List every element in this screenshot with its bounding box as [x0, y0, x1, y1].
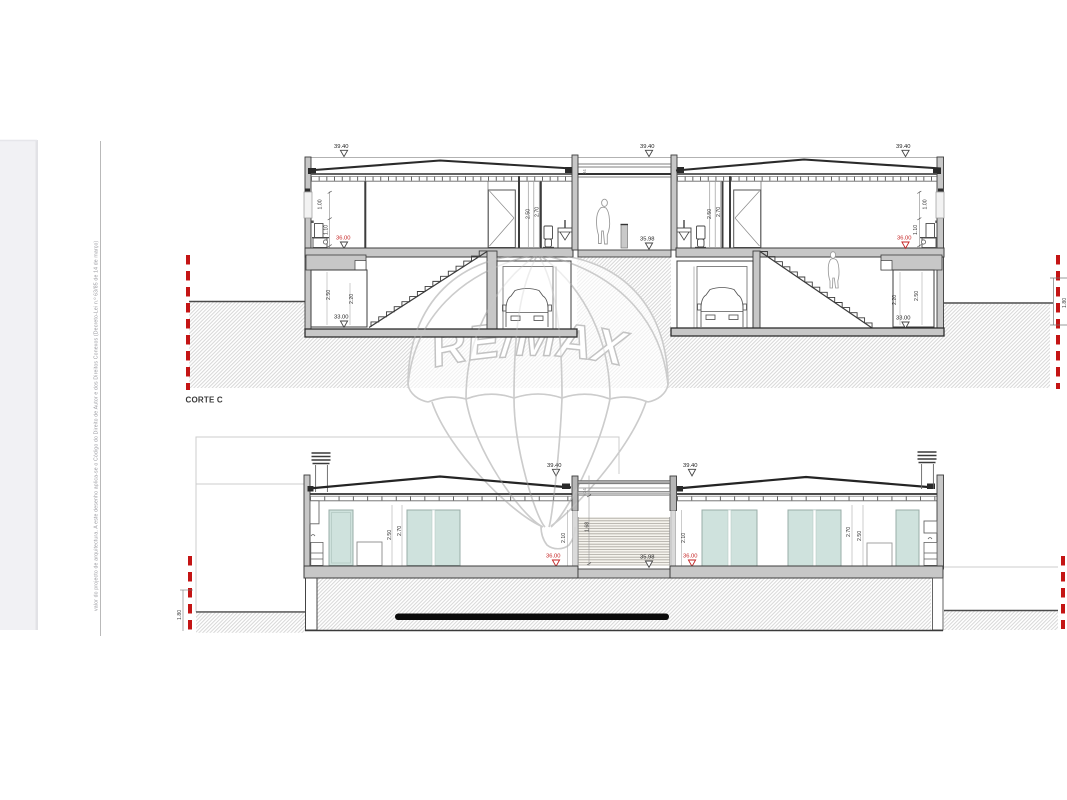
- svg-text:39.40: 39.40: [896, 144, 911, 150]
- svg-text:39.40: 39.40: [334, 144, 349, 150]
- svg-text:36.00: 36.00: [546, 554, 561, 560]
- svg-text:35.98: 35.98: [640, 237, 655, 243]
- svg-text:39.40: 39.40: [640, 144, 655, 150]
- svg-text:36.00: 36.00: [683, 554, 698, 560]
- svg-text:2.20: 2.20: [349, 294, 355, 304]
- svg-text:1.00: 1.00: [923, 199, 929, 209]
- svg-text:1.10: 1.10: [913, 225, 919, 235]
- svg-text:2.50: 2.50: [914, 291, 920, 301]
- svg-text:39.40: 39.40: [547, 463, 562, 469]
- svg-text:35.98: 35.98: [640, 555, 655, 561]
- svg-text:2.10: 2.10: [681, 533, 687, 543]
- svg-text:2.70: 2.70: [535, 207, 541, 217]
- svg-text:34: 34: [582, 169, 587, 174]
- svg-text:1.80: 1.80: [177, 610, 183, 620]
- svg-text:39.40: 39.40: [683, 463, 698, 469]
- svg-text:2.50: 2.50: [526, 209, 532, 219]
- svg-text:2.50: 2.50: [707, 209, 713, 219]
- svg-text:1.00: 1.00: [318, 199, 324, 209]
- svg-text:2.70: 2.70: [846, 527, 852, 537]
- svg-text:2.50: 2.50: [326, 290, 332, 300]
- svg-text:valor do projecto de arquitect: valor do projecto de arquitectura. A est…: [94, 240, 100, 611]
- svg-text:1.10: 1.10: [323, 225, 329, 235]
- svg-text:33.00: 33.00: [334, 315, 349, 321]
- svg-text:36.00: 36.00: [897, 236, 912, 242]
- svg-text:2.50: 2.50: [387, 530, 393, 540]
- svg-text:2.10: 2.10: [561, 533, 567, 543]
- svg-text:34: 34: [582, 488, 587, 493]
- svg-text:1.80: 1.80: [1062, 298, 1067, 308]
- svg-text:33.00: 33.00: [896, 316, 911, 322]
- svg-text:1.68: 1.68: [584, 522, 590, 532]
- svg-text:2.20: 2.20: [892, 295, 898, 305]
- svg-text:2.70: 2.70: [397, 526, 403, 536]
- svg-text:2.70: 2.70: [716, 207, 722, 217]
- svg-text:36.00: 36.00: [336, 236, 351, 242]
- svg-text:2.50: 2.50: [857, 531, 863, 541]
- svg-text:CORTE C: CORTE C: [186, 396, 223, 405]
